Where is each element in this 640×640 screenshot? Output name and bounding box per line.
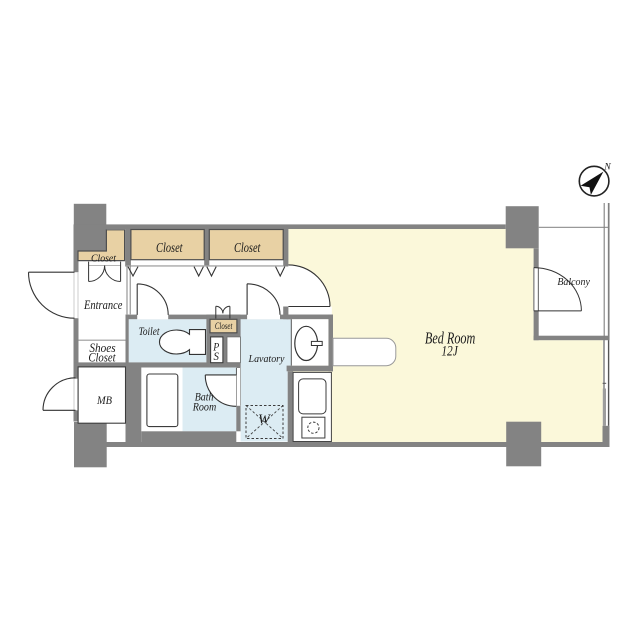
svg-text:12J: 12J xyxy=(441,343,459,359)
svg-text:W: W xyxy=(258,413,271,428)
svg-text:Lavatory: Lavatory xyxy=(248,354,285,365)
svg-text:Closet: Closet xyxy=(88,351,116,365)
svg-text:Entrance: Entrance xyxy=(83,298,123,312)
svg-text:Closet: Closet xyxy=(91,252,117,264)
svg-text:Balcony: Balcony xyxy=(557,277,590,288)
svg-text:Closet: Closet xyxy=(156,241,183,256)
svg-text:S: S xyxy=(214,351,220,363)
svg-text:Toilet: Toilet xyxy=(139,326,160,338)
svg-text:Room: Room xyxy=(192,402,216,414)
svg-text:MB: MB xyxy=(96,395,112,407)
svg-text:Closet: Closet xyxy=(234,241,261,256)
svg-text:N: N xyxy=(603,162,611,172)
svg-text:Closet: Closet xyxy=(215,322,233,332)
